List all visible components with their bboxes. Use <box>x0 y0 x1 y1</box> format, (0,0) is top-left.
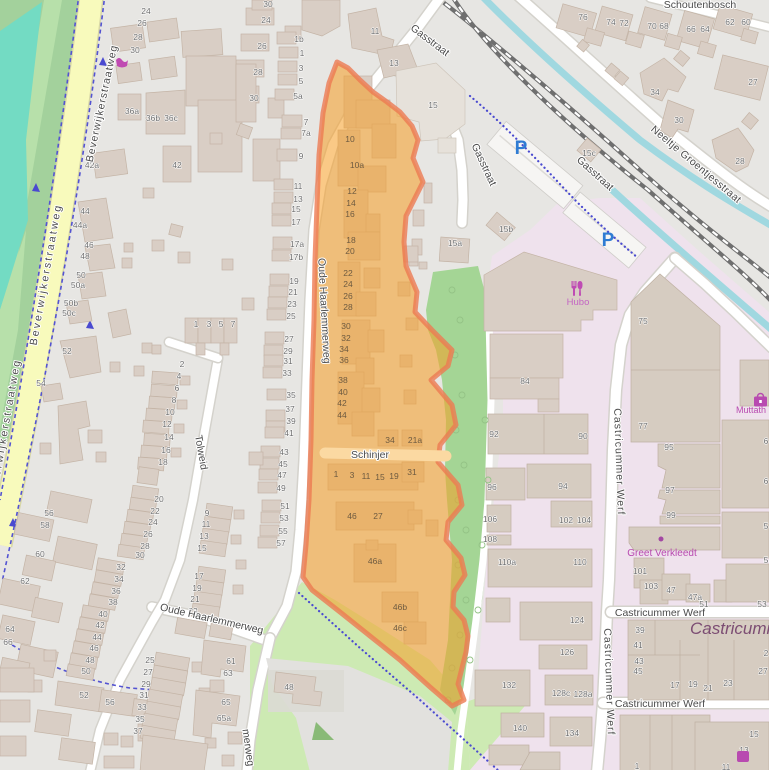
svg-text:27: 27 <box>758 666 768 676</box>
svg-text:35: 35 <box>135 714 145 724</box>
svg-text:108: 108 <box>483 534 497 544</box>
svg-text:48: 48 <box>284 682 294 692</box>
svg-text:55: 55 <box>278 526 288 536</box>
svg-text:15: 15 <box>197 543 207 553</box>
svg-text:75: 75 <box>638 316 648 326</box>
svg-text:7: 7 <box>231 319 236 329</box>
svg-text:5: 5 <box>764 521 769 531</box>
svg-text:36a: 36a <box>125 106 139 116</box>
svg-text:5a: 5a <box>293 91 303 101</box>
svg-text:38: 38 <box>338 375 348 385</box>
svg-text:30: 30 <box>135 550 145 560</box>
svg-text:12: 12 <box>162 419 172 429</box>
svg-text:20: 20 <box>154 494 164 504</box>
svg-text:33: 33 <box>282 368 292 378</box>
svg-text:3: 3 <box>207 319 212 329</box>
svg-text:52: 52 <box>79 690 89 700</box>
svg-text:26: 26 <box>343 291 353 301</box>
svg-text:23: 23 <box>723 678 733 688</box>
svg-text:53: 53 <box>757 599 767 609</box>
svg-text:134: 134 <box>565 728 579 738</box>
svg-text:50c: 50c <box>62 308 76 318</box>
svg-text:24: 24 <box>343 279 353 289</box>
svg-text:104: 104 <box>577 515 591 525</box>
svg-text:28: 28 <box>253 67 263 77</box>
svg-text:Greet Verkleedt: Greet Verkleedt <box>627 548 697 559</box>
svg-text:103: 103 <box>644 581 658 591</box>
svg-text:132: 132 <box>502 680 516 690</box>
svg-text:24: 24 <box>148 517 158 527</box>
svg-text:51: 51 <box>280 501 290 511</box>
svg-text:28: 28 <box>735 156 745 166</box>
svg-text:99: 99 <box>666 510 676 520</box>
svg-text:46b: 46b <box>393 602 407 612</box>
svg-text:42: 42 <box>95 620 105 630</box>
svg-text:95: 95 <box>664 442 674 452</box>
svg-text:11: 11 <box>202 519 211 529</box>
svg-text:34: 34 <box>339 344 349 354</box>
svg-text:27: 27 <box>143 667 153 677</box>
svg-text:3: 3 <box>299 63 304 73</box>
svg-text:126: 126 <box>560 647 574 657</box>
svg-text:50: 50 <box>76 270 86 280</box>
svg-text:18: 18 <box>346 235 356 245</box>
svg-text:6: 6 <box>764 476 769 486</box>
svg-text:21: 21 <box>190 594 200 604</box>
svg-text:34: 34 <box>385 435 395 445</box>
svg-text:102: 102 <box>559 515 573 525</box>
svg-text:25: 25 <box>145 655 155 665</box>
svg-text:19: 19 <box>192 583 202 593</box>
svg-text:30: 30 <box>674 115 684 125</box>
svg-text:46c: 46c <box>393 623 407 633</box>
svg-text:17b: 17b <box>289 252 303 262</box>
svg-text:39: 39 <box>635 625 645 635</box>
svg-text:37: 37 <box>133 726 143 736</box>
svg-text:33: 33 <box>137 702 147 712</box>
svg-text:46: 46 <box>84 240 94 250</box>
svg-text:8: 8 <box>172 395 177 405</box>
svg-text:44: 44 <box>80 206 90 216</box>
svg-text:Castricummer Werf: Castricummer Werf <box>615 698 705 710</box>
svg-text:26: 26 <box>137 18 147 28</box>
svg-text:2: 2 <box>764 648 769 658</box>
svg-text:50a: 50a <box>71 280 85 290</box>
svg-text:42: 42 <box>172 160 182 170</box>
svg-text:54: 54 <box>36 378 46 388</box>
svg-text:47: 47 <box>277 470 287 480</box>
svg-text:1b: 1b <box>294 34 304 44</box>
svg-text:5: 5 <box>299 76 304 86</box>
svg-text:106: 106 <box>483 514 497 524</box>
svg-text:17: 17 <box>291 217 301 227</box>
svg-text:27: 27 <box>373 511 383 521</box>
svg-text:4: 4 <box>177 371 182 381</box>
svg-text:15: 15 <box>375 472 385 482</box>
svg-text:15: 15 <box>291 204 301 214</box>
svg-text:Muttath: Muttath <box>736 405 766 415</box>
svg-text:Castricummerw: Castricummerw <box>690 619 769 638</box>
svg-text:60: 60 <box>35 549 45 559</box>
svg-text:21: 21 <box>703 683 713 693</box>
svg-text:96: 96 <box>487 482 497 492</box>
svg-text:101: 101 <box>633 566 647 576</box>
svg-text:25: 25 <box>286 311 296 321</box>
svg-text:42: 42 <box>337 398 347 408</box>
svg-text:43: 43 <box>634 656 644 666</box>
svg-text:61: 61 <box>226 656 236 666</box>
svg-text:1: 1 <box>300 48 305 58</box>
svg-text:39: 39 <box>286 416 296 426</box>
svg-text:31: 31 <box>283 356 293 366</box>
svg-text:31: 31 <box>139 690 149 700</box>
svg-text:15b: 15b <box>499 224 513 234</box>
svg-text:97: 97 <box>665 485 675 495</box>
svg-text:17a: 17a <box>290 239 304 249</box>
svg-text:46: 46 <box>89 643 99 653</box>
svg-text:29: 29 <box>283 346 293 356</box>
svg-text:21a: 21a <box>408 435 422 445</box>
svg-text:28: 28 <box>343 302 353 312</box>
svg-text:1: 1 <box>334 469 339 479</box>
svg-text:36c: 36c <box>164 113 178 123</box>
svg-text:12: 12 <box>347 186 357 196</box>
svg-text:30: 30 <box>130 45 140 55</box>
svg-text:16: 16 <box>345 209 355 219</box>
svg-text:30: 30 <box>341 321 351 331</box>
svg-text:22: 22 <box>150 506 160 516</box>
svg-text:26: 26 <box>143 529 153 539</box>
svg-text:140: 140 <box>513 723 527 733</box>
svg-text:1: 1 <box>635 761 640 770</box>
svg-text:64: 64 <box>700 24 710 34</box>
svg-text:66: 66 <box>3 637 13 647</box>
svg-text:P: P <box>602 230 615 251</box>
svg-text:24: 24 <box>141 6 151 16</box>
svg-text:74: 74 <box>606 17 616 27</box>
svg-text:10a: 10a <box>350 160 364 170</box>
svg-text:36: 36 <box>111 586 121 596</box>
svg-text:34: 34 <box>114 574 124 584</box>
svg-text:50: 50 <box>81 666 91 676</box>
svg-text:11: 11 <box>371 26 380 36</box>
svg-text:45: 45 <box>633 666 643 676</box>
svg-text:29: 29 <box>141 679 151 689</box>
svg-text:24: 24 <box>261 15 271 25</box>
svg-text:11: 11 <box>294 181 303 191</box>
svg-text:46a: 46a <box>368 556 382 566</box>
svg-text:27: 27 <box>284 334 294 344</box>
svg-text:58: 58 <box>40 520 50 530</box>
svg-text:13: 13 <box>199 531 209 541</box>
svg-text:38: 38 <box>108 597 118 607</box>
svg-text:62: 62 <box>20 576 30 586</box>
svg-text:40: 40 <box>98 609 108 619</box>
svg-text:20: 20 <box>345 246 355 256</box>
svg-text:77: 77 <box>638 421 648 431</box>
svg-text:26: 26 <box>257 41 267 51</box>
svg-text:56: 56 <box>44 508 54 518</box>
svg-text:13: 13 <box>389 58 399 68</box>
svg-text:17: 17 <box>194 571 204 581</box>
svg-text:31: 31 <box>407 467 417 477</box>
svg-text:Schoutenbosch: Schoutenbosch <box>664 0 737 11</box>
svg-text:68: 68 <box>659 21 669 31</box>
svg-text:5: 5 <box>219 319 224 329</box>
svg-text:84: 84 <box>520 376 530 386</box>
svg-text:62: 62 <box>725 17 735 27</box>
svg-text:18: 18 <box>158 457 168 467</box>
svg-text:6: 6 <box>175 383 180 393</box>
svg-text:15: 15 <box>749 729 759 739</box>
svg-text:65a: 65a <box>217 713 231 723</box>
svg-text:P: P <box>515 138 528 159</box>
svg-text:6: 6 <box>764 436 769 446</box>
svg-text:124: 124 <box>570 615 584 625</box>
svg-text:14: 14 <box>346 198 356 208</box>
svg-text:110: 110 <box>573 557 587 567</box>
svg-text:45: 45 <box>278 459 288 469</box>
svg-text:7a: 7a <box>301 128 311 138</box>
svg-text:53: 53 <box>279 513 289 523</box>
svg-text:65: 65 <box>221 697 231 707</box>
svg-text:48: 48 <box>80 251 90 261</box>
svg-text:9: 9 <box>205 508 210 518</box>
svg-text:1: 1 <box>194 319 199 329</box>
svg-text:7: 7 <box>304 117 309 127</box>
svg-text:3: 3 <box>350 470 355 480</box>
svg-text:32: 32 <box>116 562 126 572</box>
svg-text:30: 30 <box>263 0 273 9</box>
svg-text:14: 14 <box>164 432 174 442</box>
svg-text:90: 90 <box>578 431 588 441</box>
svg-text:11: 11 <box>722 762 731 770</box>
svg-text:41: 41 <box>633 640 643 650</box>
svg-text:37: 37 <box>285 404 295 414</box>
svg-text:Schinjer: Schinjer <box>351 449 389 461</box>
svg-text:13: 13 <box>293 194 303 204</box>
svg-text:27: 27 <box>748 77 758 87</box>
svg-text:35: 35 <box>286 390 296 400</box>
svg-text:23: 23 <box>287 299 297 309</box>
svg-text:5: 5 <box>764 555 769 565</box>
svg-text:44a: 44a <box>73 220 87 230</box>
svg-text:Castricummer Werf: Castricummer Werf <box>615 607 705 619</box>
svg-text:50b: 50b <box>64 298 78 308</box>
svg-text:63: 63 <box>223 668 233 678</box>
svg-text:15: 15 <box>428 100 438 110</box>
svg-text:9: 9 <box>299 151 304 161</box>
svg-text:34: 34 <box>650 87 660 97</box>
svg-text:44: 44 <box>92 632 102 642</box>
svg-text:Hubo: Hubo <box>567 297 590 308</box>
svg-text:16: 16 <box>161 445 171 455</box>
svg-text:110a: 110a <box>498 557 517 567</box>
svg-text:15a: 15a <box>448 238 462 248</box>
svg-text:64: 64 <box>5 624 15 634</box>
svg-text:92: 92 <box>489 429 499 439</box>
svg-text:43: 43 <box>279 447 289 457</box>
svg-text:66: 66 <box>686 24 696 34</box>
svg-text:19: 19 <box>688 679 698 689</box>
svg-text:128a: 128a <box>574 689 593 699</box>
svg-text:48: 48 <box>85 655 95 665</box>
svg-text:10: 10 <box>345 134 355 144</box>
svg-text:22: 22 <box>343 268 353 278</box>
svg-text:10: 10 <box>165 407 175 417</box>
svg-text:41: 41 <box>284 428 294 438</box>
svg-text:19: 19 <box>389 471 399 481</box>
svg-text:11: 11 <box>362 471 371 481</box>
svg-text:47: 47 <box>666 585 676 595</box>
svg-text:40: 40 <box>338 387 348 397</box>
svg-text:46: 46 <box>347 511 357 521</box>
svg-text:56: 56 <box>105 697 115 707</box>
svg-text:21: 21 <box>288 287 298 297</box>
svg-text:19: 19 <box>289 276 299 286</box>
svg-text:30: 30 <box>249 93 259 103</box>
svg-text:60: 60 <box>741 17 751 27</box>
svg-text:36b: 36b <box>146 113 160 123</box>
svg-text:128c: 128c <box>552 688 571 698</box>
svg-text:94: 94 <box>558 481 568 491</box>
svg-text:49: 49 <box>276 483 286 493</box>
svg-text:70: 70 <box>647 21 657 31</box>
svg-text:72: 72 <box>619 18 629 28</box>
svg-text:28: 28 <box>133 32 143 42</box>
svg-text:2: 2 <box>180 359 185 369</box>
svg-text:44: 44 <box>337 410 347 420</box>
svg-text:17: 17 <box>670 680 680 690</box>
svg-text:36: 36 <box>339 355 349 365</box>
svg-text:76: 76 <box>578 12 588 22</box>
svg-text:52: 52 <box>62 346 72 356</box>
svg-text:57: 57 <box>276 538 286 548</box>
svg-text:32: 32 <box>341 333 351 343</box>
